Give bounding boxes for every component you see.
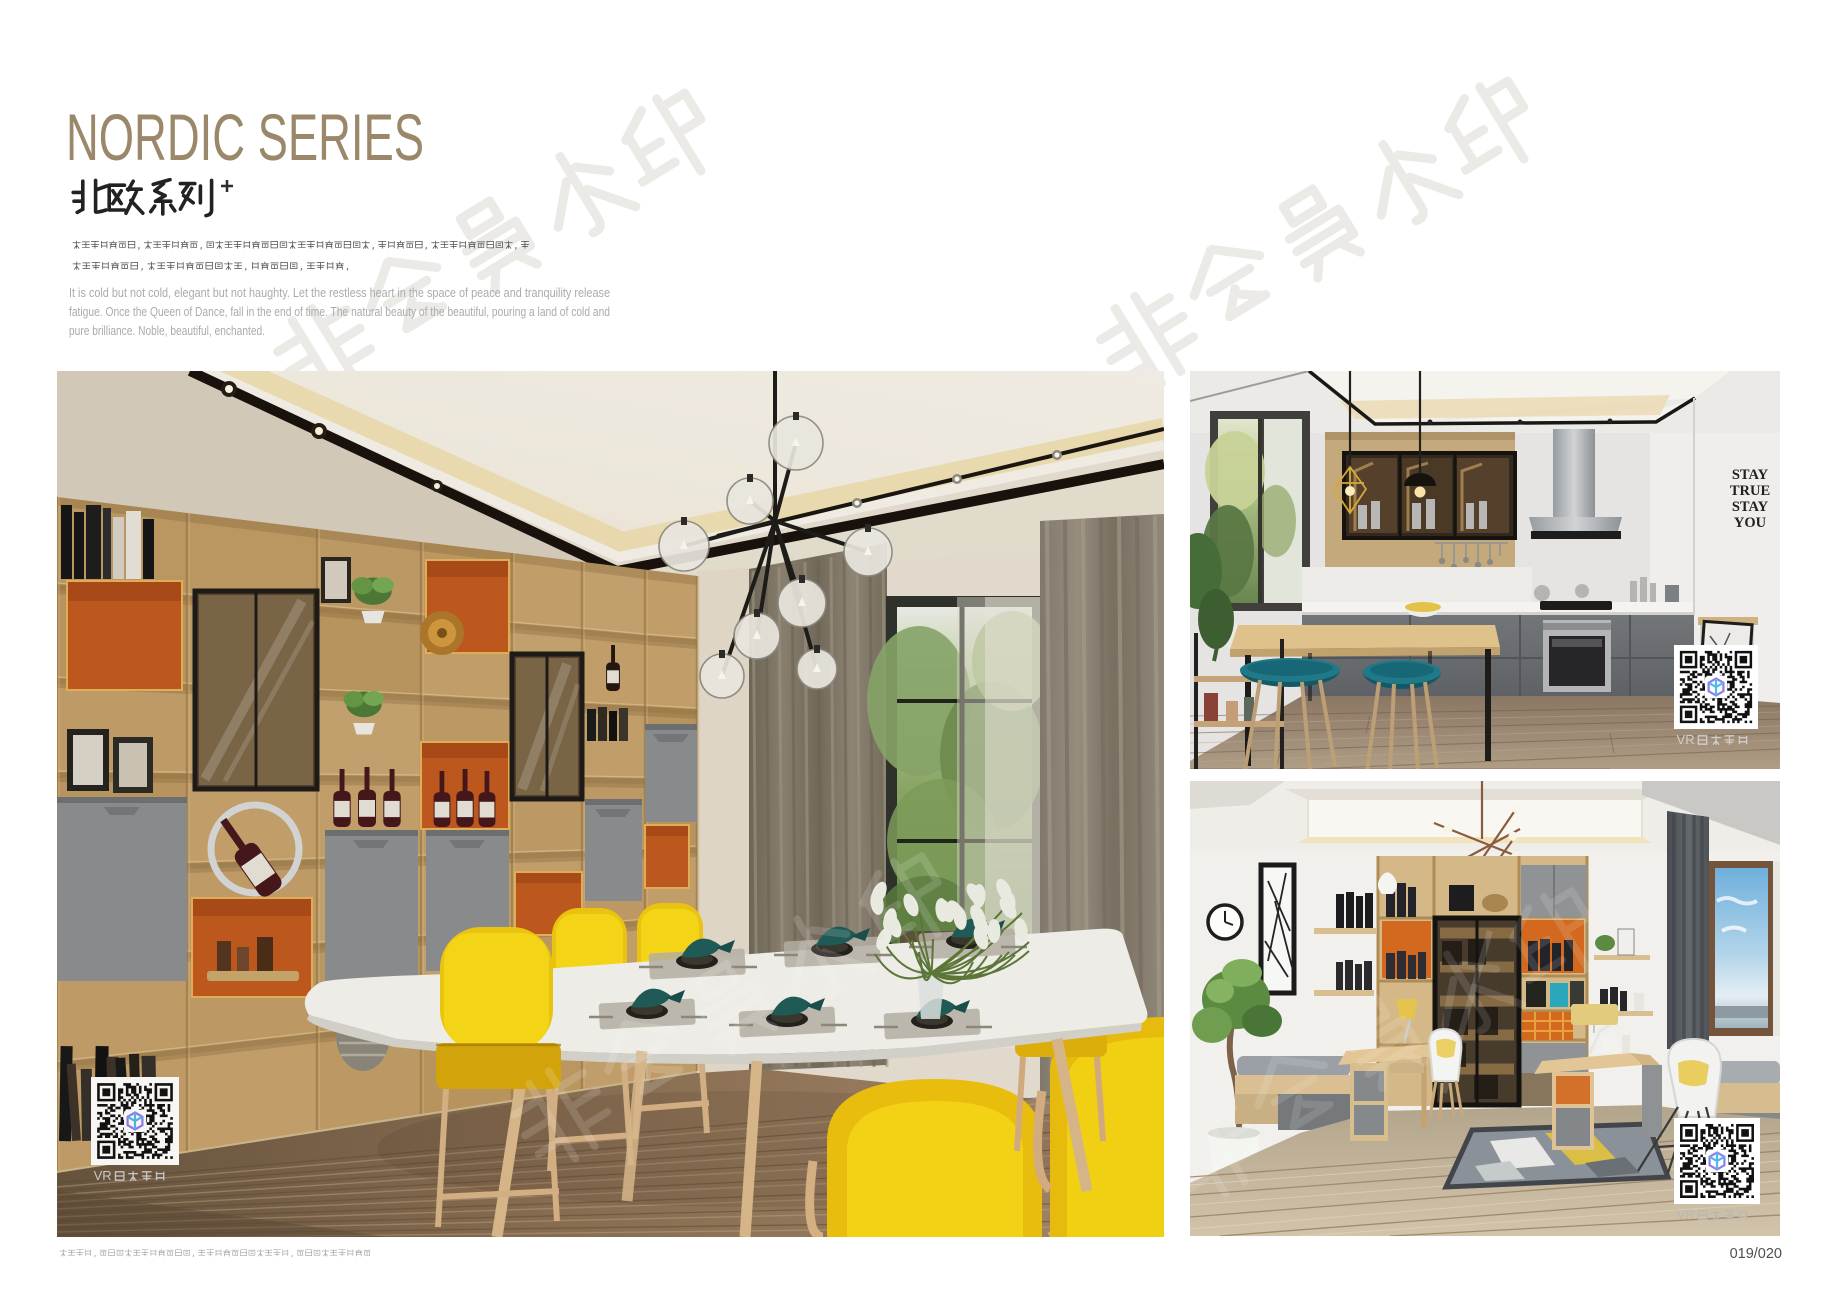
svg-text:NORDIC SERIES: NORDIC SERIES: [66, 104, 424, 170]
svg-text:VR: VR: [1677, 732, 1695, 747]
svg-text:fatigue. Once the Queen of Dan: fatigue. Once the Queen of Dance, fall i…: [69, 304, 610, 319]
svg-text:pure brilliance. Noble, beauti: pure brilliance. Noble, beautiful, encha…: [69, 323, 265, 338]
svg-text:It is cold but not cold, elega: It is cold but not cold, elegant but not…: [69, 285, 610, 300]
svg-text:VR: VR: [1677, 1207, 1695, 1222]
